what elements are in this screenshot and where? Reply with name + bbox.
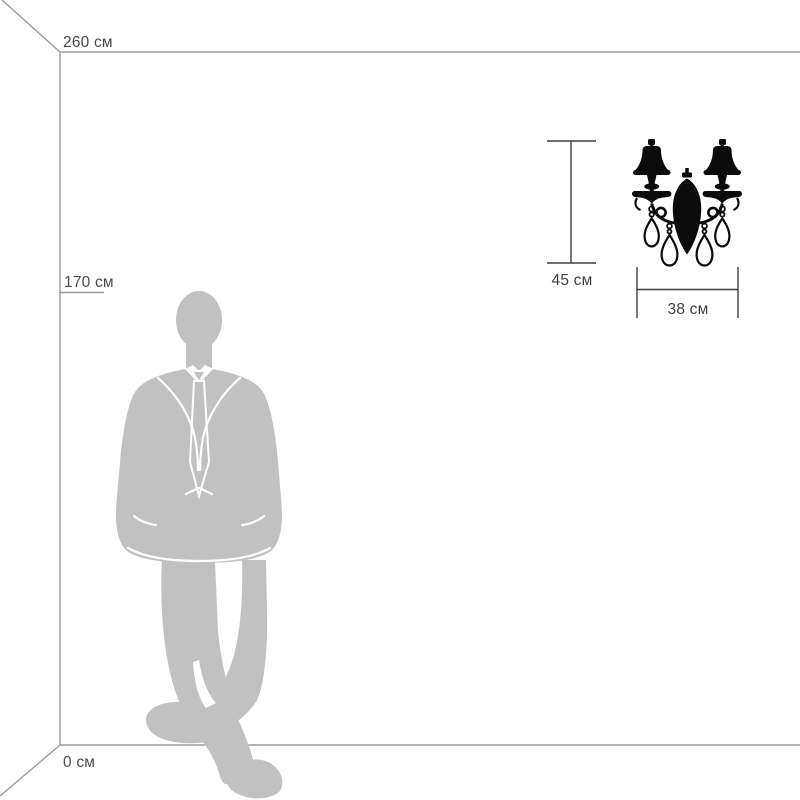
- product-width-label: 38 см: [668, 301, 709, 318]
- sconce-right-arm-unit: [696, 139, 742, 266]
- man-silhouette: [116, 291, 282, 798]
- room-outline: [0, 0, 800, 796]
- wall-top-edge: [2, 0, 800, 52]
- scale-diagram: 260 см 170 см 0 см: [0, 0, 800, 800]
- backplate-body: [673, 179, 701, 255]
- floor-perspective-edge: [0, 745, 60, 796]
- scale-diagram-canvas: 260 см 170 см 0 см: [0, 0, 800, 800]
- wall-sconce-icon: [632, 139, 742, 266]
- sconce-left-arm-unit: [632, 139, 678, 266]
- person-height-label: 170 см: [64, 274, 114, 291]
- man-neck: [186, 336, 212, 370]
- wall-scale-labels: 260 см 170 см 0 см: [63, 34, 114, 771]
- wall-height-label: 260 см: [63, 34, 113, 51]
- floor-label: 0 см: [63, 754, 95, 771]
- dimension-labels: 45 см 38 см: [552, 272, 709, 318]
- product-height-label: 45 см: [552, 272, 593, 289]
- height-dimension-marker: [547, 141, 596, 263]
- backplate-crown: [682, 173, 692, 178]
